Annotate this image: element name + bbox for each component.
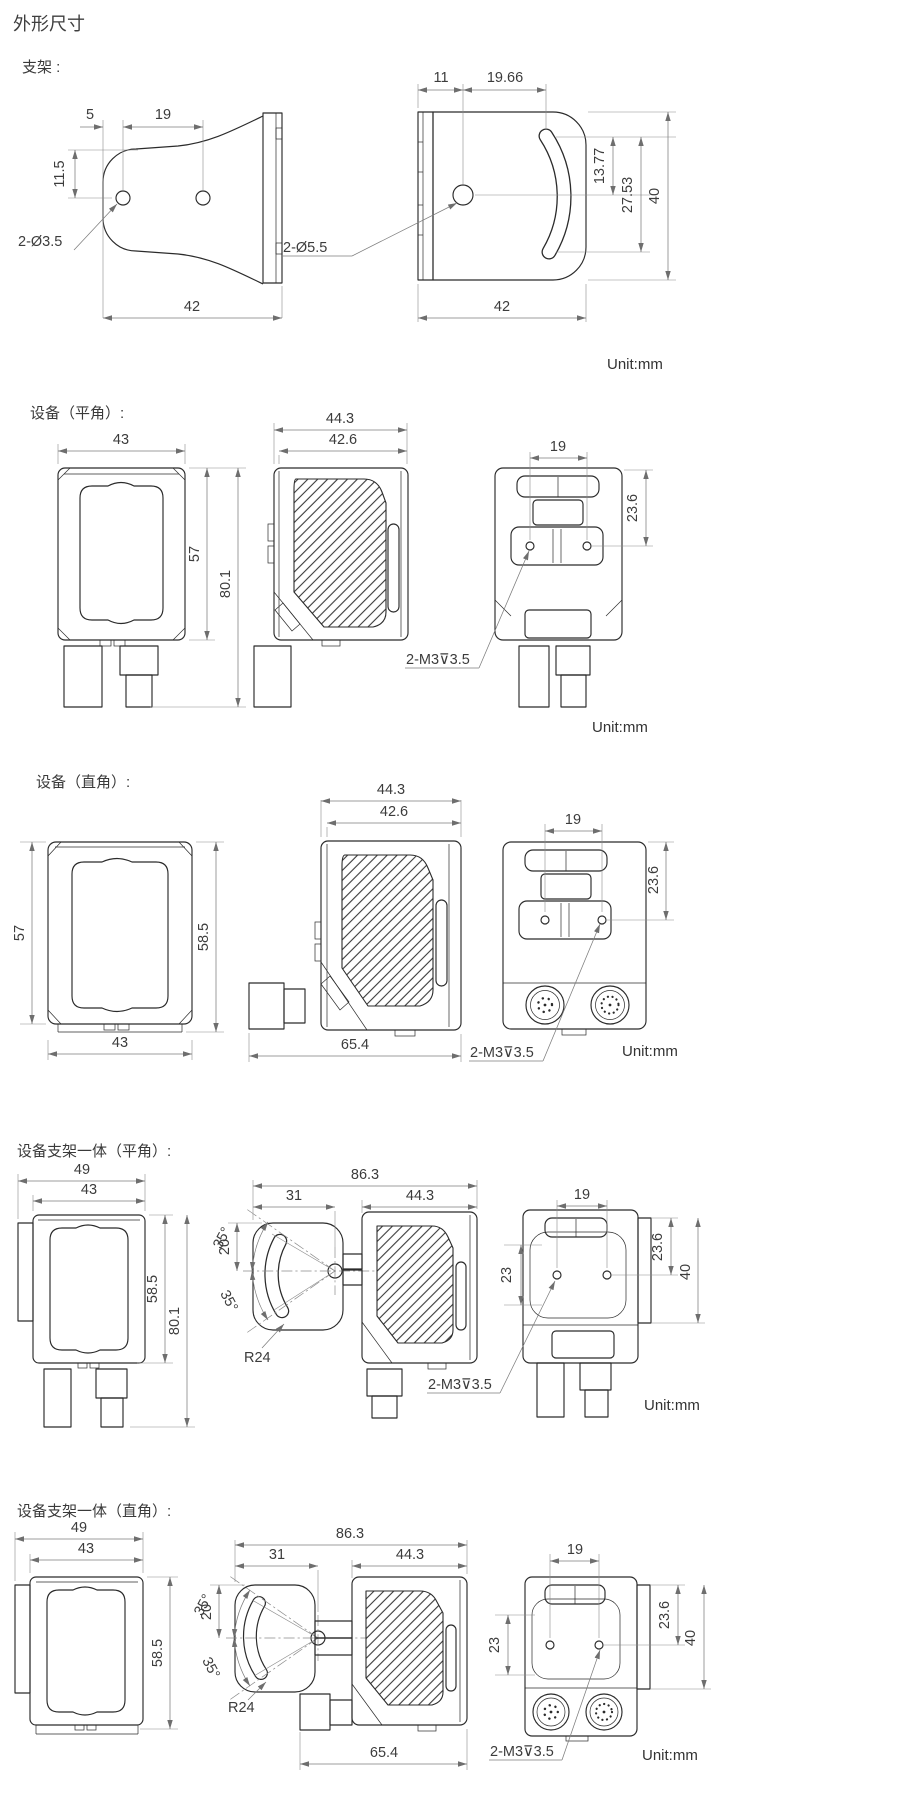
unit-label-device-right: Unit:mm [622, 1043, 678, 1060]
dim-bracket2-slot-offset: 19.66 [487, 70, 523, 86]
section-label-combo-right: 设备支架一体（直角）: [17, 1500, 171, 1521]
callout-cf-radius: R24 [244, 1350, 271, 1366]
device-flat-rear-view: 19 23.6 2-M3⊽3.5 Unit:mm [405, 439, 653, 736]
dim-df-depth-total: 44.3 [326, 411, 354, 427]
dim-df-total-height: 80.1 [218, 570, 234, 598]
dim-df-depth-body: 42.6 [329, 432, 357, 448]
dim-dr-width: 43 [112, 1035, 128, 1051]
unit-label-bracket: Unit:mm [607, 356, 663, 373]
dim-cr-screw-spacing: 19 [567, 1542, 583, 1558]
combo-right-rear-view: 19 23 23.6 40 2-M3⊽3.5 Unit:mm [487, 1542, 711, 1764]
dim-cr-width-body: 43 [78, 1541, 94, 1557]
callout-dr-thread: 2-M3⊽3.5 [470, 1045, 534, 1061]
dim-cf-total-height: 80.1 [167, 1307, 183, 1335]
section-label-bracket: 支架 : [22, 56, 60, 77]
dim-df-screw-spacing: 19 [550, 439, 566, 455]
dim-cf-width-body: 43 [81, 1182, 97, 1198]
dim-cr-length-with-connector: 65.4 [370, 1745, 398, 1761]
unit-label-combo-flat: Unit:mm [644, 1397, 700, 1414]
device-right-side-view: 44.3 42.6 65.4 [249, 782, 461, 1062]
dim-df-screw-offset: 23.6 [625, 494, 641, 522]
dim-bracket2-hole-offset: 11 [433, 70, 448, 86]
dim-cf-length-total: 86.3 [351, 1167, 379, 1183]
unit-label-device-flat: Unit:mm [592, 719, 648, 736]
dim-cf-slot-offset: 20 [217, 1239, 233, 1255]
dim-bracket-hole-offset-y: 11.5 [52, 160, 68, 187]
device-flat-side-view: 44.3 42.6 [254, 411, 408, 707]
section-label-device-flat: 设备（平角）: [30, 402, 124, 423]
device-right-rear-view: 19 23.6 2-M3⊽3.5 Unit:mm [469, 812, 678, 1061]
callout-cr-thread: 2-M3⊽3.5 [490, 1744, 554, 1760]
callout-bracket-holes-large: 2-Ø5.5 [283, 240, 327, 256]
dim-cf-bracket-height: 40 [678, 1264, 694, 1280]
callout-bracket-holes-small: 2-Ø3.5 [18, 234, 62, 250]
dim-dr-depth-total: 44.3 [377, 782, 405, 798]
dim-bracket-hole-spacing: 19 [155, 107, 171, 123]
callout-cf-thread: 2-M3⊽3.5 [428, 1377, 492, 1393]
dim-cr-bracket-length: 31 [269, 1547, 285, 1563]
dim-cf-bracket-length: 31 [286, 1188, 302, 1204]
dim-df-width: 43 [113, 432, 129, 448]
page-title: 外形尺寸 [13, 10, 85, 36]
callout-cr-radius: R24 [228, 1700, 255, 1716]
dim-cr-length-total: 86.3 [336, 1526, 364, 1542]
combo-right-side-view: 35° 35° 20 R24 86.3 31 44.3 65.4 [191, 1526, 467, 1770]
dim-cf-screw-spacing: 19 [574, 1187, 590, 1203]
dim-dr-depth-body: 42.6 [380, 804, 408, 820]
dim-cr-body-height: 58.5 [150, 1639, 166, 1667]
dim-cf-device-depth: 44.3 [406, 1188, 434, 1204]
dim-df-body-height: 57 [187, 546, 203, 562]
dim-cf-body-height: 58.5 [145, 1275, 161, 1303]
unit-label-combo-right: Unit:mm [642, 1747, 698, 1764]
bracket-side-view: 5 19 11.5 2-Ø3.5 42 [18, 107, 282, 318]
dim-bracket2-slot-top: 13.77 [592, 148, 608, 184]
dim-dr-screw-spacing: 19 [565, 812, 581, 828]
dim-cr-width-total: 49 [71, 1520, 87, 1536]
combo-right-front-view: 49 43 58.5 [15, 1520, 178, 1734]
bracket-front-view: 11 19.66 13.77 27.53 40 2-Ø5.5 42 Unit:m… [283, 70, 676, 373]
section-label-combo-flat: 设备支架一体（平角）: [17, 1140, 171, 1161]
device-flat-front-view: 43 57 80.1 [58, 432, 246, 707]
dim-bracket2-slot-span: 27.53 [620, 177, 636, 213]
dim-bracket-hole-offset-x: 5 [86, 107, 94, 123]
dim-cr-bracket-height: 40 [683, 1630, 699, 1646]
dim-cr-angle-down: 35° [198, 1655, 222, 1682]
dim-dr-total-height: 58.5 [196, 923, 212, 951]
dim-dr-screw-offset: 23.6 [646, 866, 662, 894]
dim-bracket-width: 42 [184, 299, 200, 315]
dim-cf-angle-down: 35° [216, 1288, 240, 1315]
dim-cr-device-depth: 44.3 [396, 1547, 424, 1563]
dim-cr-slot-offset: 20 [199, 1604, 215, 1620]
combo-flat-rear-view: 19 23 23.6 40 2-M3⊽3.5 Unit:mm [427, 1187, 705, 1417]
dimensions-page: 5 19 11.5 2-Ø3.5 42 11 19.66 13.77 27.53… [0, 0, 907, 1818]
dim-bracket2-height: 40 [647, 188, 663, 204]
dim-cf-hole-span: 23 [499, 1267, 515, 1283]
dimension-drawings: 5 19 11.5 2-Ø3.5 42 11 19.66 13.77 27.53… [0, 0, 907, 1818]
section-label-device-right: 设备（直角）: [36, 771, 130, 792]
dim-cr-hole-span: 23 [487, 1637, 503, 1653]
dim-cf-screw-offset: 23.6 [650, 1233, 666, 1261]
dim-cr-screw-offset: 23.6 [657, 1601, 673, 1629]
device-right-front-view: 57 58.5 43 [12, 842, 224, 1060]
dim-dr-length-with-connector: 65.4 [341, 1037, 369, 1053]
dim-cf-width-total: 49 [74, 1162, 90, 1178]
dim-bracket2-width: 42 [494, 299, 510, 315]
combo-flat-front-view: 49 43 58.5 80.1 [18, 1162, 195, 1427]
callout-df-thread: 2-M3⊽3.5 [406, 652, 470, 668]
dim-dr-body-height: 57 [12, 925, 28, 941]
